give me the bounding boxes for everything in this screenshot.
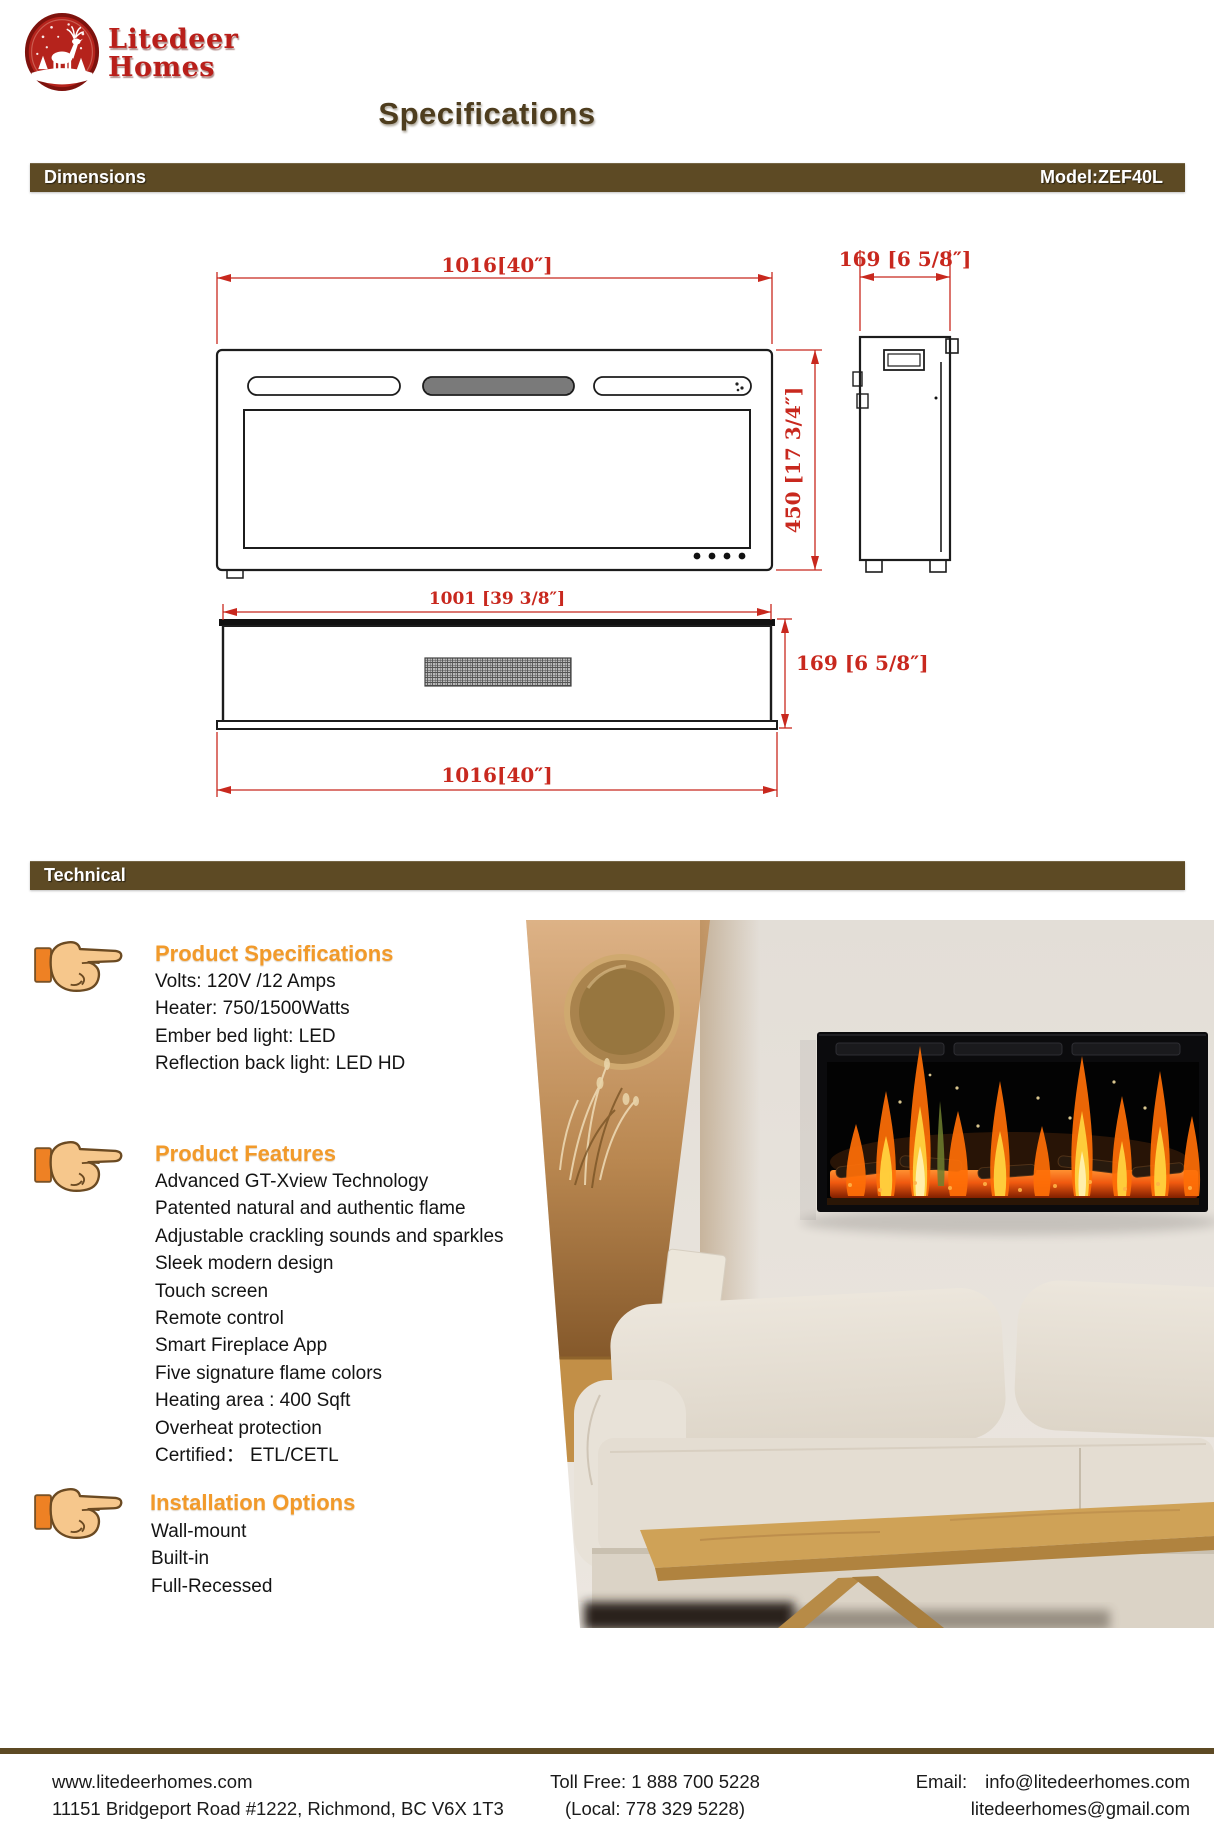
deer-logo-icon bbox=[24, 12, 100, 92]
photo-sepia-corner bbox=[526, 920, 760, 1462]
photo-dark-ornament bbox=[638, 1316, 668, 1358]
option-line: Built-in bbox=[151, 1545, 272, 1572]
section-heading-installation-options: Installation Options bbox=[150, 1490, 355, 1516]
footer-website: www.litedeerhomes.com bbox=[52, 1768, 504, 1795]
photo-coffee-table bbox=[640, 1502, 1214, 1628]
dim-overall-width-bottom: 1016[40″] bbox=[441, 763, 552, 787]
dim-top-depth: 169 [6 5/8″] bbox=[796, 651, 929, 675]
feature-line: Overheat protection bbox=[155, 1415, 504, 1442]
footer-phones: Toll Free: 1 888 700 5228 (Local: 778 32… bbox=[490, 1768, 820, 1822]
spec-sheet-page: Litedeer Homes Specifications Dimensions… bbox=[0, 0, 1214, 1839]
spec-line: Ember bed light: LED bbox=[155, 1023, 405, 1050]
pointing-hand-icon bbox=[33, 1483, 127, 1541]
feature-line: Remote control bbox=[155, 1305, 504, 1332]
feature-line: Adjustable crackling sounds and sparkles bbox=[155, 1223, 504, 1250]
photo-flames bbox=[846, 1046, 1200, 1196]
photo-dried-plants bbox=[560, 1065, 636, 1185]
touch-control-dots bbox=[694, 553, 746, 560]
dim-top-inner-width: 1001 [39 3/8″] bbox=[429, 589, 565, 609]
dimensions-bar: Dimensions Model:ZEF40L bbox=[30, 163, 1185, 192]
feature-line: Patented natural and authentic flame bbox=[155, 1195, 504, 1222]
photo-mirror bbox=[567, 957, 677, 1067]
installation-options-list: Wall-mount Built-in Full-Recessed bbox=[151, 1518, 272, 1600]
photo-fireplace bbox=[800, 1032, 1214, 1235]
front-view bbox=[217, 350, 772, 578]
footer-address: 11151 Bridgeport Road #1222, Richmond, B… bbox=[52, 1795, 504, 1822]
feature-line: Advanced GT-Xview Technology bbox=[155, 1168, 504, 1195]
model-label: Model:ZEF40L bbox=[1040, 167, 1185, 188]
footer-local: (Local: 778 329 5228) bbox=[490, 1795, 820, 1822]
dimension-annotations: 1016[40″] 169 [6 5/8″] 450 [17 3/4″] 100… bbox=[217, 247, 971, 797]
feature-line: Sleek modern design bbox=[155, 1250, 504, 1277]
brand-wordmark: Litedeer Homes bbox=[108, 26, 238, 82]
dimensions-bar-label: Dimensions bbox=[30, 167, 146, 188]
product-features-list: Advanced GT-Xview Technology Patented na… bbox=[155, 1168, 504, 1469]
dim-front-width: 1016[40″] bbox=[441, 253, 552, 277]
brand-name-line2: Homes bbox=[108, 54, 238, 82]
photo-sofa bbox=[574, 1279, 1214, 1628]
top-view bbox=[217, 619, 777, 729]
footer-email-label: Email: bbox=[916, 1771, 967, 1792]
feature-line: Certified： ETL/CETL bbox=[155, 1442, 504, 1469]
product-specifications-list: Volts: 120V /12 Amps Heater: 750/1500Wat… bbox=[155, 968, 405, 1078]
option-line: Full-Recessed bbox=[151, 1573, 272, 1600]
footer-left: www.litedeerhomes.com 11151 Bridgeport R… bbox=[52, 1768, 504, 1822]
spec-line: Reflection back light: LED HD bbox=[155, 1050, 405, 1077]
brand-logo: Litedeer Homes bbox=[24, 12, 238, 92]
spec-line: Volts: 120V /12 Amps bbox=[155, 968, 405, 995]
footer-toll-free: Toll Free: 1 888 700 5228 bbox=[490, 1768, 820, 1795]
pointing-hand-icon bbox=[33, 1136, 127, 1194]
section-heading-product-specifications: Product Specifications bbox=[155, 941, 393, 967]
dim-side-depth-top: 169 [6 5/8″] bbox=[839, 247, 972, 271]
feature-line: Touch screen bbox=[155, 1278, 504, 1305]
footer-divider bbox=[0, 1748, 1214, 1754]
side-view bbox=[853, 337, 958, 572]
feature-line: Smart Fireplace App bbox=[155, 1332, 504, 1359]
dim-front-height: 450 [17 3/4″] bbox=[781, 387, 805, 534]
footer-email: Email:info@litedeerhomes.com litedeerhom… bbox=[916, 1768, 1190, 1822]
page-title: Specifications bbox=[0, 96, 974, 132]
pointing-hand-icon bbox=[33, 936, 127, 994]
spec-line: Heater: 750/1500Watts bbox=[155, 995, 405, 1022]
brand-name-line1: Litedeer bbox=[108, 26, 238, 54]
footer-email-2: litedeerhomes@gmail.com bbox=[916, 1795, 1190, 1822]
technical-bar-label: Technical bbox=[30, 865, 126, 886]
option-line: Wall-mount bbox=[151, 1518, 272, 1545]
feature-line: Heating area : 400 Sqft bbox=[155, 1387, 504, 1414]
technical-bar: Technical bbox=[30, 861, 1185, 890]
section-heading-product-features: Product Features bbox=[155, 1141, 336, 1167]
feature-line: Five signature flame colors bbox=[155, 1360, 504, 1387]
footer-email-1: info@litedeerhomes.com bbox=[985, 1771, 1190, 1792]
